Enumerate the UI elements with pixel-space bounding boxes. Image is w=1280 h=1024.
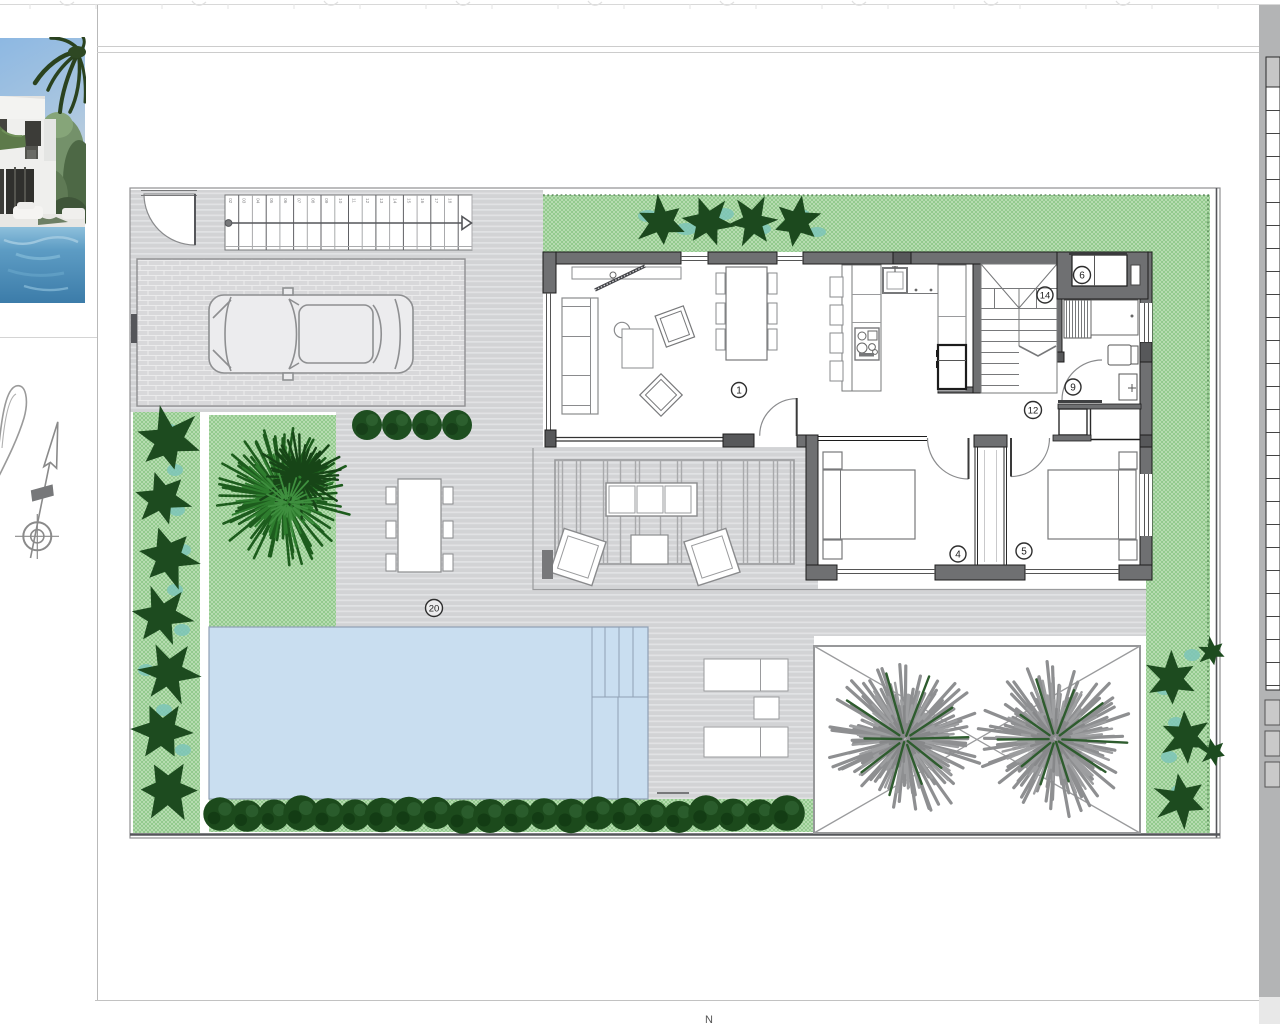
svg-text:08: 08 bbox=[309, 198, 315, 204]
svg-text:1: 1 bbox=[736, 386, 742, 397]
svg-text:05: 05 bbox=[268, 198, 274, 204]
svg-text:5: 5 bbox=[1021, 547, 1027, 558]
svg-text:9: 9 bbox=[1070, 383, 1076, 394]
svg-text:20: 20 bbox=[429, 603, 440, 614]
svg-text:12: 12 bbox=[364, 198, 370, 204]
svg-text:6: 6 bbox=[1079, 271, 1085, 282]
svg-text:04: 04 bbox=[254, 198, 260, 204]
svg-text:16: 16 bbox=[419, 198, 425, 204]
svg-text:10: 10 bbox=[337, 198, 343, 204]
svg-text:07: 07 bbox=[296, 198, 302, 204]
svg-text:14: 14 bbox=[1040, 290, 1051, 301]
svg-text:02: 02 bbox=[227, 198, 233, 204]
svg-text:13: 13 bbox=[378, 198, 384, 204]
svg-text:N: N bbox=[705, 1014, 713, 1024]
svg-text:18: 18 bbox=[447, 198, 453, 204]
svg-text:14: 14 bbox=[392, 198, 398, 204]
svg-text:15: 15 bbox=[405, 198, 411, 204]
svg-text:03: 03 bbox=[241, 198, 247, 204]
svg-text:17: 17 bbox=[433, 198, 439, 204]
svg-text:4: 4 bbox=[955, 550, 961, 561]
svg-text:09: 09 bbox=[323, 198, 329, 204]
svg-text:11: 11 bbox=[351, 198, 357, 203]
svg-text:06: 06 bbox=[282, 198, 288, 204]
svg-text:12: 12 bbox=[1028, 405, 1039, 416]
